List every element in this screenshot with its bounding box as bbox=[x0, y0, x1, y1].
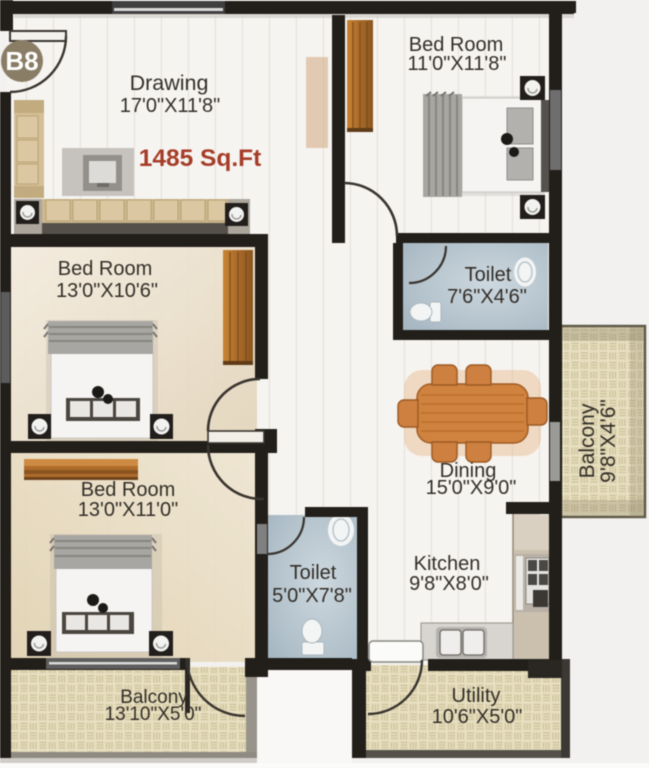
svg-text:5'0"X7'8": 5'0"X7'8" bbox=[272, 585, 352, 607]
svg-text:15'0"X9'0": 15'0"X9'0" bbox=[426, 477, 517, 499]
svg-text:17'0"X11'8": 17'0"X11'8" bbox=[120, 95, 220, 117]
svg-text:13'0"X11'0": 13'0"X11'0" bbox=[78, 499, 178, 521]
svg-text:13'0"X10'6": 13'0"X10'6" bbox=[56, 280, 158, 302]
svg-text:Bed Room: Bed Room bbox=[58, 258, 153, 280]
svg-text:Drawing: Drawing bbox=[130, 71, 209, 95]
svg-text:10'6"X5'0": 10'6"X5'0" bbox=[432, 706, 523, 728]
svg-text:Kitchen: Kitchen bbox=[414, 553, 481, 575]
svg-text:1485 Sq.Ft: 1485 Sq.Ft bbox=[139, 145, 262, 172]
svg-text:9'8"X8'0": 9'8"X8'0" bbox=[409, 573, 489, 595]
svg-text:11'0"X11'8": 11'0"X11'8" bbox=[408, 53, 507, 75]
svg-text:B8: B8 bbox=[5, 46, 38, 76]
svg-text:13'10"X5'0": 13'10"X5'0" bbox=[105, 704, 202, 725]
svg-text:Bed Room: Bed Room bbox=[81, 479, 176, 501]
svg-text:7'6"X4'6": 7'6"X4'6" bbox=[447, 286, 527, 308]
svg-text:Toilet: Toilet bbox=[290, 562, 337, 584]
svg-text:Toilet: Toilet bbox=[465, 264, 512, 286]
svg-text:Utility: Utility bbox=[452, 685, 501, 707]
svg-text:Balcony9'8"X4'6": Balcony9'8"X4'6" bbox=[576, 399, 620, 483]
